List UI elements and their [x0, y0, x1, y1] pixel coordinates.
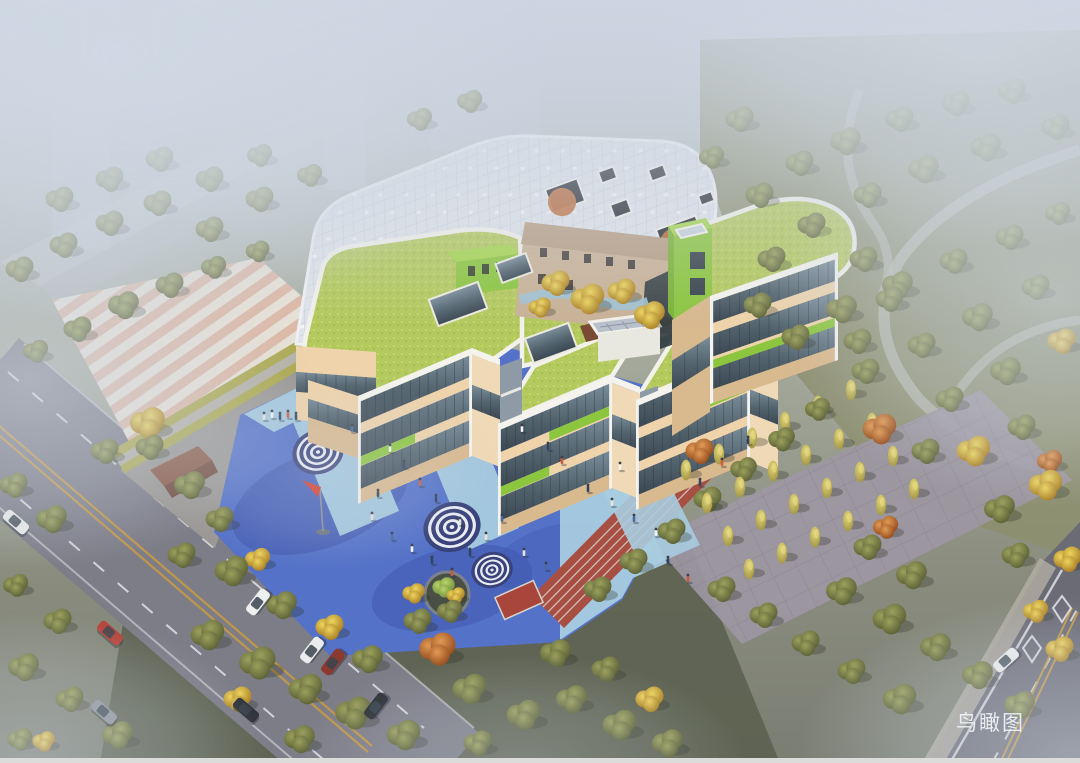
aerial-rendering: 鸟瞰图 — [0, 0, 1080, 763]
caption-label: 鸟瞰图 — [956, 711, 1025, 735]
frame-strip — [0, 758, 1080, 763]
scene-svg: 鸟瞰图 — [0, 0, 1080, 763]
